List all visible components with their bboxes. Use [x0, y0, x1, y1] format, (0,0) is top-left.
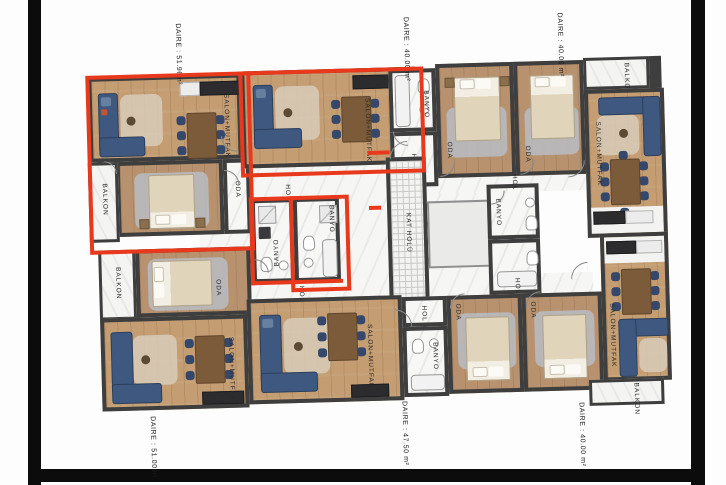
kitchen-counter [636, 240, 662, 254]
kitchen-counter [202, 391, 244, 405]
l-sofa [618, 319, 638, 377]
bed-pillows [473, 367, 488, 377]
salon-label: SALON+MUTFAK [227, 337, 235, 401]
bed-pillows [550, 365, 565, 375]
apt4-oda-room: ODA [522, 292, 605, 392]
rug [597, 114, 640, 155]
floor-plan-page: DAIRE : 51.96m² DAIRE : 40.00 m² DAIRE :… [0, 0, 726, 485]
l-sofa [642, 96, 662, 156]
area-label-top-right: DAIRE : 40.00 m² [556, 13, 565, 78]
oda-label: ODA [214, 279, 221, 296]
balkon-label: BALKON [114, 267, 121, 300]
salon-label: SALON+MUTFAK [594, 122, 602, 186]
washing-machine [259, 227, 271, 239]
apt5-oda-room: ODA [447, 294, 525, 394]
kat-holu-label: KAT HOLÜ [404, 213, 412, 253]
l-sofa [261, 372, 319, 394]
dining-table [621, 268, 652, 315]
toilet [412, 339, 424, 354]
dining-chairs [317, 316, 326, 325]
dining-table [327, 312, 358, 361]
nightstand [444, 78, 454, 88]
hol-label: HOL [510, 174, 517, 191]
apt3-balkon-room: BALKON [583, 56, 650, 90]
kitchen-counter [625, 210, 653, 224]
apt6-salon-room: SALON+MUTFAK [100, 314, 250, 411]
area-label-bottom-middle: DAIRE : 47.50 m² [400, 401, 409, 466]
elevator-landing [427, 200, 491, 269]
rug [639, 338, 668, 373]
nightstand [499, 76, 509, 86]
apt4-salon-room: SALON+MUTFAK [600, 232, 672, 382]
stair-core-room: KAT HOLÜ [386, 156, 430, 309]
highlight-segment [369, 206, 381, 210]
wall-segment [649, 56, 662, 90]
kitchen-counter [593, 211, 625, 225]
rug [133, 334, 178, 385]
door-arc [571, 262, 588, 279]
apt3-oda-room: ODA [513, 60, 586, 176]
highlight-outline-banyo [289, 195, 352, 293]
bathtub [411, 374, 445, 391]
highlight-segment [367, 150, 389, 155]
apt5-salon-room: SALON+MUTFAK [247, 295, 405, 404]
area-label-bottom-right: DAIRE : 40.00 m² [578, 402, 587, 467]
highlight-outline-apartment [85, 71, 255, 255]
salon-label: SALON+MUTFAK [365, 324, 373, 388]
apt2-oda-room: ODA [435, 62, 516, 178]
dining-table [195, 335, 226, 384]
apt4-balkon-room: BALKON [589, 378, 665, 406]
rug [283, 317, 331, 374]
hol-label: HOL [513, 278, 520, 295]
bed-pillows [534, 77, 549, 87]
l-sofa [112, 383, 163, 404]
balkon-label: BALKON [632, 383, 639, 416]
highlight-outline-salon [238, 66, 426, 177]
apt5-banyo-room: BANYO [402, 326, 449, 397]
oda-label: ODA [445, 142, 452, 159]
sink [525, 197, 535, 207]
dining-chairs [611, 272, 620, 281]
banyo-label: BANYO [274, 239, 281, 267]
dining-table [610, 158, 641, 205]
floor-plan: DAIRE : 51.96m² DAIRE : 40.00 m² DAIRE :… [34, 7, 706, 477]
hol-label: HOL [420, 305, 427, 322]
toilet [526, 250, 538, 265]
kitchen-counter [606, 241, 636, 255]
dining-chairs [185, 339, 194, 348]
area-label-bottom-left: DAIRE : 51.00m² [149, 416, 158, 478]
apt6-balkon-room: BALKON [98, 250, 137, 321]
apt6-oda-room: ODA [135, 246, 252, 317]
salon-label: SALON+MUTFAK [608, 303, 616, 367]
bed-pillows [459, 79, 474, 89]
banyo-label: BANYO [431, 342, 438, 370]
sofa-cushion [262, 319, 273, 328]
shower [258, 206, 276, 224]
toilet [525, 215, 537, 230]
apt3-salon-room: SALON+MUTFAK [584, 88, 668, 238]
bed-pillows [154, 267, 164, 282]
